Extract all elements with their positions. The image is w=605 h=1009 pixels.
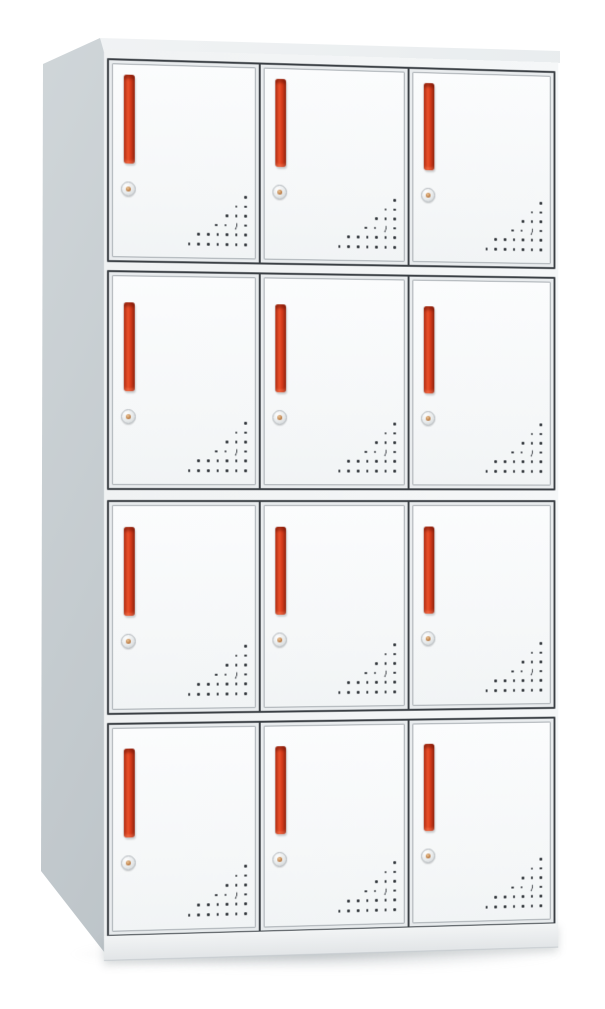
vent-dot xyxy=(197,904,200,907)
locker-door-r4-c1 xyxy=(112,726,256,932)
vent-dot xyxy=(513,470,515,473)
vent-dot xyxy=(366,460,368,463)
vent-dot xyxy=(540,230,542,233)
vent-row xyxy=(331,687,396,697)
vent-dot xyxy=(245,884,248,887)
vent-row xyxy=(533,420,542,429)
vent-dot xyxy=(338,691,341,694)
vent-dot xyxy=(504,460,506,463)
vent-dot xyxy=(226,692,229,695)
vent-dot xyxy=(540,220,542,223)
locker-door-r3-c1 xyxy=(112,505,256,710)
vent-dot xyxy=(531,679,533,682)
vent-dot xyxy=(511,229,513,232)
vent-row xyxy=(238,418,247,428)
vent-dot xyxy=(226,913,229,916)
door-cell xyxy=(259,721,408,931)
vent-dot xyxy=(540,642,542,645)
keyhole-core xyxy=(426,636,431,641)
vent-dot xyxy=(235,441,238,444)
vent-dot xyxy=(245,460,248,463)
vent-dot xyxy=(215,450,218,453)
vent-dot xyxy=(394,441,396,444)
vent-dot xyxy=(366,681,368,684)
vent-row xyxy=(378,428,396,438)
vent-crescent xyxy=(527,448,535,458)
door-lock-keyhole xyxy=(421,188,435,203)
vent-crescent xyxy=(231,220,239,230)
vent-dot xyxy=(245,865,248,868)
vent-dot xyxy=(245,469,248,472)
vent-dot xyxy=(375,236,377,239)
vent-dot xyxy=(384,899,386,902)
vent-dot xyxy=(520,886,522,889)
vent-dot xyxy=(522,442,524,445)
vent-dot xyxy=(375,470,377,473)
vent-dot xyxy=(520,451,522,454)
door-cell xyxy=(259,502,408,711)
vent-dot xyxy=(394,199,396,202)
vent-dot xyxy=(197,693,200,696)
door-cell xyxy=(109,502,259,713)
vent-dot xyxy=(245,903,248,906)
door-lock-keyhole xyxy=(272,185,287,200)
door-handle xyxy=(124,749,135,838)
vent-row xyxy=(515,657,542,667)
vent-dot xyxy=(226,664,229,667)
locker-door-r1-c2 xyxy=(264,68,405,262)
vent-row xyxy=(387,195,396,205)
vent-row xyxy=(191,456,247,466)
keyhole-core xyxy=(426,193,431,198)
vent-dot xyxy=(245,874,248,877)
vent-holes xyxy=(331,194,396,252)
vent-dot xyxy=(207,693,210,696)
vent-dot xyxy=(513,905,515,908)
vent-dot xyxy=(540,904,542,907)
vent-dot xyxy=(394,218,396,221)
vent-dot xyxy=(531,661,533,664)
vent-dot xyxy=(245,431,248,434)
vent-dot xyxy=(366,236,368,239)
vent-dot xyxy=(188,914,191,917)
vent-dot xyxy=(522,248,524,251)
vent-dot xyxy=(245,893,248,896)
door-lock-keyhole xyxy=(121,181,136,196)
vent-dot xyxy=(235,912,238,915)
vent-dot xyxy=(384,880,386,883)
locker-door-r1-c1 xyxy=(112,63,256,259)
vent-dot xyxy=(513,689,515,692)
vent-dot xyxy=(235,874,238,877)
vent-dot xyxy=(531,904,533,907)
vent-dot xyxy=(384,681,386,684)
vent-row xyxy=(358,668,396,678)
vent-dot xyxy=(374,672,376,675)
vent-dot xyxy=(347,245,350,248)
vent-dot xyxy=(366,899,368,902)
vent-dot xyxy=(347,900,350,903)
door-cell xyxy=(109,272,259,488)
vent-dot xyxy=(207,683,210,686)
vent-row xyxy=(368,438,396,448)
vent-dot xyxy=(197,469,200,472)
vent-dot xyxy=(215,894,218,897)
vent-dot xyxy=(207,460,210,463)
vent-dot xyxy=(384,653,386,656)
vent-dot xyxy=(245,215,248,218)
vent-dot xyxy=(235,234,238,237)
vent-dot xyxy=(540,670,542,673)
vent-dot xyxy=(531,876,533,879)
vent-dot xyxy=(522,895,524,898)
vent-dot xyxy=(394,681,396,684)
vent-dot xyxy=(357,236,359,239)
locker-door-r1-c3 xyxy=(412,72,550,264)
vent-dot xyxy=(486,247,488,250)
vent-dot xyxy=(375,441,377,444)
vent-crescent xyxy=(231,670,239,680)
door-handle xyxy=(424,83,434,170)
vent-dot xyxy=(495,680,497,683)
vent-dot xyxy=(531,470,533,473)
vent-dot xyxy=(394,662,396,665)
vent-dot xyxy=(486,689,488,692)
vent-dot xyxy=(375,691,377,694)
vent-dot xyxy=(394,899,396,902)
vent-dot xyxy=(540,239,542,242)
vent-dot xyxy=(224,450,227,453)
vent-dot xyxy=(226,460,229,463)
vent-dot xyxy=(394,690,396,693)
vent-dot xyxy=(522,239,524,242)
door-lock-keyhole xyxy=(421,411,435,426)
vent-row xyxy=(533,639,542,648)
vent-dot xyxy=(540,433,542,436)
vent-dot xyxy=(245,441,248,444)
vent-dot xyxy=(226,243,229,246)
vent-dot xyxy=(226,903,229,906)
vent-dot xyxy=(357,460,359,463)
locker-row-4 xyxy=(107,717,555,937)
vent-dot xyxy=(365,451,367,454)
vent-row xyxy=(341,457,396,467)
vent-dot xyxy=(394,861,396,864)
vent-dot xyxy=(366,909,368,912)
vent-holes xyxy=(479,197,542,254)
vent-dot xyxy=(513,248,515,251)
vent-dot xyxy=(374,890,376,893)
door-handle xyxy=(124,527,135,616)
door-handle xyxy=(424,527,434,614)
vent-dot xyxy=(216,692,219,695)
locker-door-r4-c3 xyxy=(412,722,550,924)
vent-dot xyxy=(347,691,350,694)
vent-dot xyxy=(207,233,210,236)
vent-dot xyxy=(522,661,524,664)
vent-dot xyxy=(216,243,219,246)
vent-dot xyxy=(216,913,219,916)
vent-dot xyxy=(511,670,513,673)
door-lock-keyhole xyxy=(121,409,136,424)
vent-dot xyxy=(384,217,386,220)
vent-dot xyxy=(540,451,542,454)
vent-dot xyxy=(531,895,533,898)
door-lock-keyhole xyxy=(421,848,435,863)
vent-row xyxy=(378,204,396,214)
keyhole-core xyxy=(277,857,282,862)
vent-dot xyxy=(531,461,533,464)
vent-dot xyxy=(513,896,515,899)
cabinet-front xyxy=(104,49,558,961)
vent-dot xyxy=(245,205,248,208)
vent-row xyxy=(331,905,396,916)
vent-dot xyxy=(197,233,200,236)
vent-dot xyxy=(540,876,542,879)
vent-dot xyxy=(394,432,396,435)
vent-row xyxy=(488,457,542,466)
vent-row xyxy=(524,429,542,438)
vent-dot xyxy=(245,664,248,667)
locker-row-2 xyxy=(107,270,555,490)
vent-dot xyxy=(540,248,542,251)
vent-dot xyxy=(347,909,350,912)
vent-dot xyxy=(531,433,533,436)
door-handle xyxy=(124,302,135,391)
vent-dot xyxy=(531,689,533,692)
vent-dot xyxy=(522,689,524,692)
vent-dot xyxy=(531,442,533,445)
vent-dot xyxy=(347,681,350,684)
vent-dot xyxy=(216,233,219,236)
door-handle xyxy=(275,746,286,834)
door-lock-keyhole xyxy=(421,631,435,646)
vent-dot xyxy=(522,679,524,682)
vent-dot xyxy=(224,224,227,227)
vent-dot xyxy=(245,673,248,676)
vent-dot xyxy=(216,903,219,906)
vent-dot xyxy=(540,867,542,870)
vent-dot xyxy=(375,662,377,665)
vent-dot xyxy=(207,243,210,246)
vent-row xyxy=(368,659,396,669)
vent-crescent xyxy=(380,223,388,233)
vent-dot xyxy=(338,469,341,472)
vent-dot xyxy=(357,909,359,912)
vent-holes xyxy=(331,419,396,476)
vent-dot xyxy=(495,248,497,251)
vent-row xyxy=(358,447,396,457)
vent-dot xyxy=(540,661,542,664)
vent-dot xyxy=(365,227,367,230)
vent-dot xyxy=(540,651,542,654)
vent-holes xyxy=(181,641,247,699)
vent-dot xyxy=(216,469,219,472)
vent-dot xyxy=(197,460,200,463)
vent-dot xyxy=(245,422,248,425)
door-handle xyxy=(275,304,286,392)
vent-dot xyxy=(197,683,200,686)
vent-crescent xyxy=(380,668,388,678)
vent-dot xyxy=(384,871,386,874)
vent-dot xyxy=(338,245,341,248)
vent-dot xyxy=(357,245,359,248)
door-lock-keyhole xyxy=(121,634,136,649)
vent-dot xyxy=(347,236,350,239)
vent-dot xyxy=(540,461,542,464)
vent-row xyxy=(208,670,247,680)
vent-dot xyxy=(235,215,238,218)
door-cell xyxy=(408,277,554,489)
vent-crescent xyxy=(527,882,535,892)
locker-door-r2-c3 xyxy=(412,280,550,486)
vent-dot xyxy=(375,246,377,249)
vent-dot xyxy=(226,683,229,686)
vent-dot xyxy=(215,224,218,227)
vent-dot xyxy=(513,461,515,464)
vent-dot xyxy=(235,205,238,208)
vent-dot xyxy=(531,211,533,214)
vent-dot xyxy=(394,880,396,883)
door-cell xyxy=(408,69,554,267)
vent-dot xyxy=(540,858,542,861)
vent-dot xyxy=(188,469,191,472)
vent-dot xyxy=(365,890,367,893)
vent-row xyxy=(181,909,247,920)
vent-row xyxy=(181,239,247,250)
vent-dot xyxy=(394,423,396,426)
vent-dot xyxy=(511,886,513,889)
vent-dot xyxy=(522,905,524,908)
vent-dot xyxy=(235,664,238,667)
vent-dot xyxy=(384,432,386,435)
door-grid xyxy=(104,49,558,961)
vent-dot xyxy=(540,211,542,214)
vent-dot xyxy=(540,886,542,889)
vent-row xyxy=(368,214,396,224)
vent-dot xyxy=(495,689,497,692)
vent-dot xyxy=(216,460,219,463)
keyhole-core xyxy=(277,190,282,195)
vent-dot xyxy=(366,245,368,248)
vent-row xyxy=(228,428,247,438)
vent-dot xyxy=(540,423,542,426)
vent-row xyxy=(378,867,396,877)
vent-row xyxy=(533,854,542,864)
vent-dot xyxy=(235,460,238,463)
vent-dot xyxy=(207,913,210,916)
vent-dot xyxy=(522,461,524,464)
door-handle xyxy=(124,75,135,164)
vent-dot xyxy=(338,910,341,913)
vent-dot xyxy=(245,692,248,695)
vent-crescent xyxy=(527,226,535,236)
vent-dot xyxy=(522,877,524,880)
vent-row xyxy=(387,640,396,649)
vent-dot xyxy=(384,441,386,444)
vent-dot xyxy=(347,469,350,472)
vent-dot xyxy=(357,469,359,472)
vent-dot xyxy=(357,900,359,903)
vent-dot xyxy=(245,683,248,686)
vent-dot xyxy=(486,470,488,473)
vent-dot xyxy=(366,470,368,473)
vent-row xyxy=(238,641,247,651)
vent-dot xyxy=(540,442,542,445)
locker-row-3 xyxy=(107,500,555,715)
door-lock-keyhole xyxy=(272,852,287,867)
vent-dot xyxy=(384,460,386,463)
vent-dot xyxy=(235,469,238,472)
vent-dot xyxy=(188,242,191,245)
vent-dot xyxy=(513,239,515,242)
vent-row xyxy=(228,651,247,661)
vent-dot xyxy=(235,243,238,246)
vent-dot xyxy=(375,217,377,220)
vent-dot xyxy=(394,671,396,674)
vent-row xyxy=(238,861,247,871)
vent-row xyxy=(524,864,542,874)
vent-dot xyxy=(504,470,506,473)
vent-dot xyxy=(375,460,377,463)
vent-dot xyxy=(375,681,377,684)
vent-dot xyxy=(188,693,191,696)
vent-dot xyxy=(384,208,386,211)
vent-dot xyxy=(226,233,229,236)
vent-dot xyxy=(365,672,367,675)
vent-dot xyxy=(384,246,386,249)
vent-dot xyxy=(495,238,497,241)
vent-dot xyxy=(245,450,248,453)
vent-holes xyxy=(181,418,247,475)
vent-row xyxy=(238,192,247,202)
locker-door-r2-c1 xyxy=(112,275,256,485)
vent-row xyxy=(219,660,247,670)
locker-door-r3-c2 xyxy=(264,505,405,708)
vent-dot xyxy=(394,643,396,646)
vent-row xyxy=(515,438,542,447)
vent-row xyxy=(479,244,542,254)
vent-dot xyxy=(504,905,506,908)
vent-dot xyxy=(235,431,238,434)
vent-dot xyxy=(375,909,377,912)
vent-dot xyxy=(394,653,396,656)
door-cell xyxy=(109,723,259,935)
door-lock-keyhole xyxy=(272,632,287,647)
vent-dot xyxy=(245,224,248,227)
vent-holes xyxy=(181,191,247,249)
door-lock-keyhole xyxy=(272,410,287,425)
vent-row xyxy=(228,871,247,881)
vent-crescent xyxy=(527,666,535,676)
vent-row xyxy=(479,685,542,695)
vent-dot xyxy=(216,683,219,686)
keyhole-core xyxy=(126,860,131,865)
vent-dot xyxy=(245,912,248,915)
vent-dot xyxy=(384,690,386,693)
vent-dot xyxy=(347,460,350,463)
locker-door-r4-c2 xyxy=(264,724,405,928)
vent-row xyxy=(387,419,396,428)
locker-door-r3-c3 xyxy=(412,505,550,706)
vent-dot xyxy=(540,470,542,473)
door-handle xyxy=(424,744,434,831)
vent-row xyxy=(524,648,542,658)
vent-row xyxy=(524,207,542,217)
vent-dot xyxy=(207,469,210,472)
vent-dot xyxy=(531,239,533,242)
vent-dot xyxy=(226,441,229,444)
